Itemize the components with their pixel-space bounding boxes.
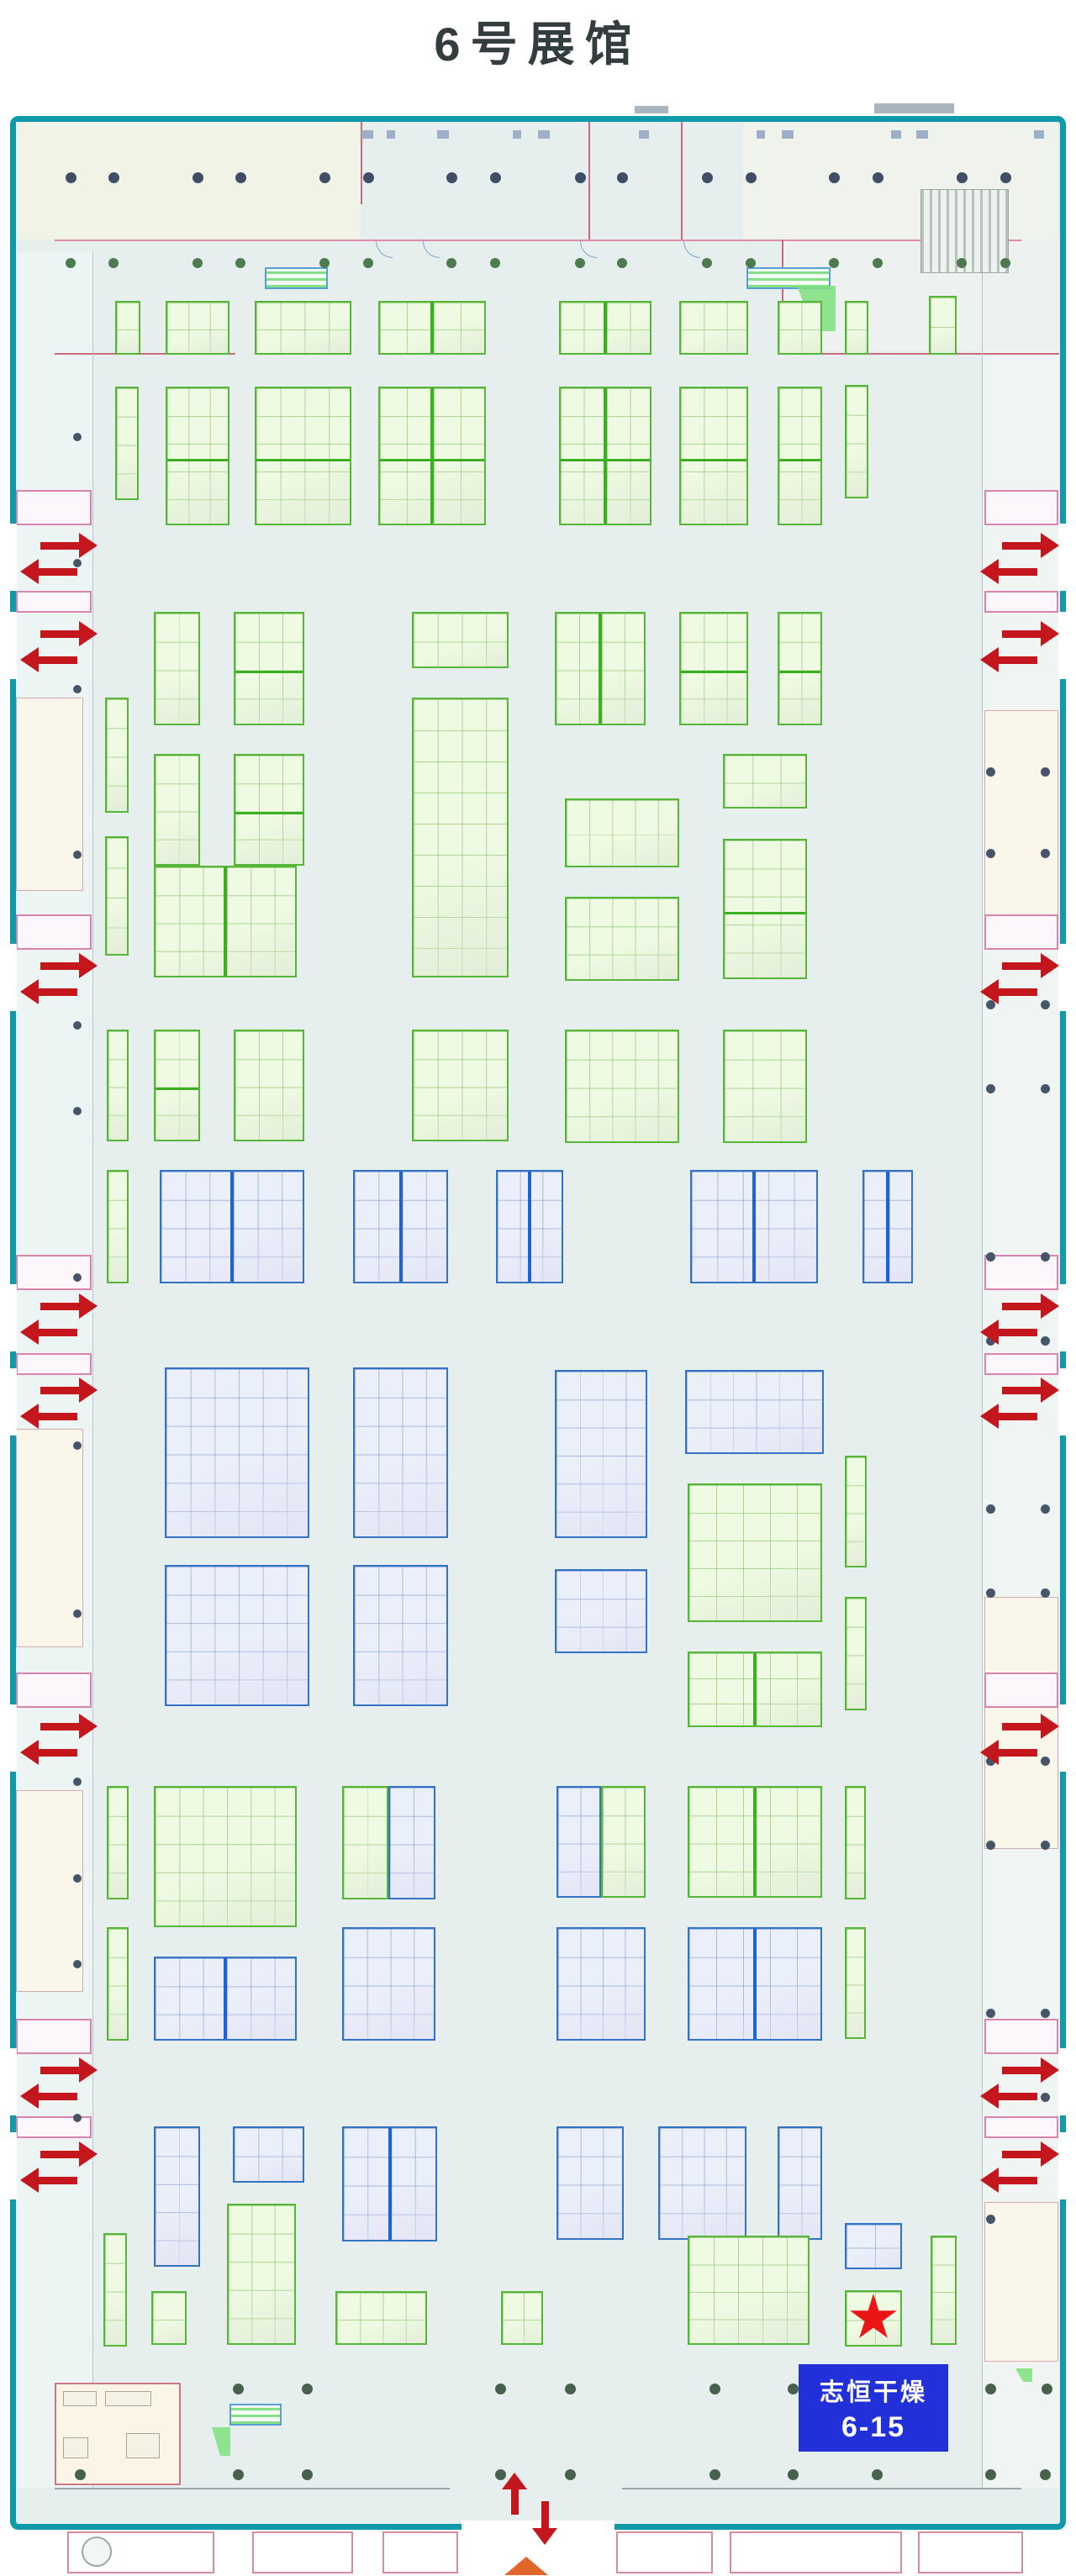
- column-dot: [1041, 849, 1050, 858]
- booth: [845, 1597, 867, 1710]
- exit-arrow-right-icon: [1002, 1714, 1059, 1739]
- column-dot: [1041, 1588, 1050, 1598]
- column-dot: [1041, 1757, 1050, 1766]
- booth-divider: [224, 1958, 227, 2039]
- booth: [227, 2204, 296, 2345]
- outside-room: [252, 2531, 353, 2573]
- service-fixture: [105, 2391, 151, 2406]
- booth: [931, 2236, 957, 2345]
- booth: [388, 1786, 435, 1899]
- vent-icon: [1034, 130, 1044, 139]
- column-dot: [1041, 1252, 1050, 1262]
- perimeter-room: [16, 914, 92, 950]
- booth: [154, 754, 200, 866]
- column-dot: [746, 172, 757, 183]
- door-gap: [1058, 612, 1068, 679]
- column-dot: [66, 258, 76, 268]
- column-dot: [985, 2384, 996, 2394]
- door-gap: [1058, 2132, 1068, 2199]
- column-dot: [446, 258, 456, 268]
- door-gap: [8, 524, 17, 591]
- booth: [501, 2291, 543, 2345]
- column-dot: [73, 1609, 82, 1618]
- wall-line: [622, 2488, 1021, 2489]
- exit-arrow-right-icon: [1002, 621, 1059, 646]
- entrance-arrow-up-icon: [502, 2473, 527, 2516]
- column-dot: [446, 172, 457, 183]
- booth: [105, 698, 129, 813]
- booth: [845, 2223, 902, 2269]
- booth-label-card: 志恒干燥 6-15: [799, 2364, 948, 2452]
- booth: [353, 1170, 448, 1283]
- booth-divider: [235, 812, 303, 814]
- column-dot: [73, 1441, 82, 1450]
- orange-triangle-icon: [504, 2557, 548, 2575]
- booth: [154, 2126, 200, 2267]
- column-dot: [788, 2469, 799, 2480]
- column-dot: [957, 258, 967, 268]
- column-dot: [872, 2469, 883, 2480]
- exit-arrow-left-icon: [980, 559, 1037, 584]
- column-dot: [75, 2469, 86, 2480]
- column-dot: [873, 172, 883, 183]
- outside-room: [382, 2531, 458, 2573]
- booth: [151, 2291, 187, 2345]
- booth: [342, 1786, 388, 1899]
- perimeter-room: [984, 1353, 1058, 1375]
- perimeter-room: [984, 914, 1058, 950]
- perimeter-room: [984, 490, 1058, 525]
- floor-plan: 志恒干燥 6-15: [0, 0, 1076, 2576]
- booth-divider: [167, 459, 228, 461]
- exit-arrow-left-icon: [20, 647, 77, 672]
- exit-arrow-right-icon: [40, 1378, 98, 1403]
- column-dot: [1041, 1841, 1050, 1850]
- column-dot: [617, 258, 627, 268]
- booth-divider: [779, 459, 820, 461]
- booth: [234, 754, 304, 866]
- exit-arrow-right-icon: [40, 2141, 98, 2167]
- booth-label-company: 志恒干燥: [820, 2373, 927, 2408]
- booth: [353, 1367, 448, 1538]
- booth: [154, 1030, 200, 1141]
- booth: [412, 1030, 509, 1141]
- column-dot: [575, 172, 586, 183]
- perimeter-room: [984, 2202, 1058, 2362]
- wall-line: [55, 2488, 450, 2489]
- exit-arrow-left-icon: [20, 979, 77, 1004]
- perimeter-room: [16, 490, 92, 525]
- column-dot: [73, 433, 82, 441]
- wall-line: [681, 122, 683, 240]
- booth: [601, 1786, 646, 1898]
- column-dot: [985, 2469, 996, 2480]
- exit-arrow-left-icon: [980, 1740, 1037, 1765]
- column-dot: [702, 258, 712, 268]
- booth: [496, 1170, 563, 1283]
- booth: [555, 612, 646, 725]
- column-dot: [73, 1107, 82, 1115]
- booth: [107, 1786, 129, 1899]
- column-dot: [1041, 1000, 1050, 1009]
- column-dot: [235, 172, 246, 183]
- booth: [778, 2126, 822, 2240]
- booth: [688, 2236, 810, 2345]
- exit-arrow-right-icon: [1002, 1293, 1059, 1319]
- column-dot: [565, 2384, 576, 2394]
- booth-divider: [753, 1788, 757, 1896]
- roof-chip: [635, 106, 668, 113]
- booth-divider: [528, 1172, 531, 1282]
- exit-arrow-right-icon: [40, 953, 98, 978]
- wall-line: [782, 353, 1059, 355]
- booth: [688, 1483, 822, 1622]
- booth-divider: [380, 459, 484, 461]
- booth-divider: [156, 1088, 198, 1090]
- booth: [166, 387, 229, 525]
- booth: [688, 1927, 822, 2041]
- booth-divider: [604, 303, 607, 353]
- booth: [845, 1456, 867, 1567]
- wall-line: [588, 122, 590, 240]
- booth: [555, 1569, 647, 1653]
- booth-divider: [752, 1172, 756, 1282]
- booth-divider: [430, 388, 434, 524]
- exit-arrow-left-icon: [20, 2168, 77, 2193]
- booth: [107, 1170, 129, 1283]
- booth: [679, 301, 748, 355]
- vent-icon: [387, 130, 395, 139]
- booth: [559, 387, 651, 525]
- column-dot: [108, 172, 119, 183]
- perimeter-room: [16, 1353, 92, 1375]
- door-gap: [8, 1704, 17, 1772]
- booth-divider: [256, 459, 350, 461]
- booth-divider: [725, 912, 805, 914]
- exit-arrow-left-icon: [20, 1404, 77, 1429]
- booth: [556, 2126, 624, 2240]
- exit-arrow-right-icon: [40, 1293, 98, 1319]
- exit-arrow-right-icon: [1002, 1378, 1059, 1403]
- booth: [565, 798, 679, 867]
- column-dot: [1041, 767, 1050, 777]
- column-dot: [363, 258, 373, 268]
- booth-divider: [399, 1172, 403, 1282]
- column-dot: [702, 172, 713, 183]
- info-kiosk-icon: [265, 267, 328, 289]
- outside-room: [616, 2531, 713, 2573]
- vent-icon: [916, 130, 928, 139]
- column-dot: [108, 258, 119, 268]
- booth: [555, 1370, 647, 1538]
- booth: [556, 1786, 601, 1898]
- column-dot: [233, 2384, 244, 2394]
- booth: [255, 387, 351, 525]
- column-dot: [73, 2114, 82, 2122]
- booth: [353, 1565, 448, 1706]
- booth: [556, 1927, 646, 2041]
- column-dot: [986, 1841, 995, 1850]
- booth-divider: [430, 303, 434, 353]
- column-dot: [1040, 2469, 1051, 2480]
- exit-arrow-left-icon: [980, 1320, 1037, 1345]
- booth: [929, 296, 957, 355]
- vent-icon: [782, 130, 794, 139]
- column-dot: [73, 851, 82, 859]
- column-dot: [986, 1252, 995, 1262]
- vent-icon: [513, 130, 521, 139]
- door-gap: [8, 2132, 17, 2199]
- column-dot: [986, 767, 995, 777]
- door-gap: [8, 2048, 17, 2115]
- exit-arrow-left-icon: [980, 2083, 1037, 2109]
- perimeter-room: [16, 2019, 92, 2054]
- exit-arrow-right-icon: [40, 533, 98, 558]
- exit-arrow-left-icon: [20, 1320, 77, 1345]
- vent-icon: [538, 130, 550, 139]
- column-dot: [986, 2009, 995, 2018]
- perimeter-room: [984, 591, 1058, 613]
- column-dot: [73, 1778, 82, 1786]
- booth: [166, 301, 229, 355]
- exit-arrow-left-icon: [980, 1404, 1037, 1429]
- booth: [105, 836, 129, 956]
- door-gap: [1058, 1704, 1068, 1772]
- booth: [690, 1170, 818, 1283]
- booth: [335, 2291, 427, 2345]
- booth: [565, 897, 679, 981]
- booth: [115, 387, 139, 500]
- exit-arrow-left-icon: [20, 1740, 77, 1765]
- booth: [658, 2126, 746, 2240]
- exit-arrow-right-icon: [40, 2057, 98, 2083]
- booth: [154, 1786, 297, 1927]
- area-tint: [743, 122, 1058, 240]
- booth: [679, 387, 748, 525]
- booth-divider: [753, 1653, 757, 1725]
- exit-arrow-right-icon: [40, 1714, 98, 1739]
- column-dot: [986, 849, 995, 858]
- booth: [845, 301, 868, 355]
- column-dot: [302, 2469, 313, 2480]
- door-gap: [8, 944, 17, 1011]
- column-dot: [986, 1588, 995, 1598]
- column-dot: [363, 172, 374, 183]
- door-gap: [8, 612, 17, 679]
- booth: [234, 1030, 304, 1141]
- booth: [103, 2233, 127, 2347]
- booth: [154, 612, 200, 725]
- exit-arrow-left-icon: [980, 979, 1037, 1004]
- booth-divider: [753, 1929, 757, 2039]
- column-dot: [788, 2384, 799, 2394]
- vent-icon: [639, 130, 649, 139]
- column-dot: [746, 258, 756, 268]
- column-dot: [319, 258, 330, 268]
- column-dot: [73, 685, 82, 693]
- column-dot: [1000, 258, 1010, 268]
- roof-chip: [874, 103, 954, 113]
- column-dot: [73, 1874, 82, 1883]
- booth-divider: [230, 1172, 234, 1282]
- column-dot: [193, 172, 203, 183]
- column-dot: [1041, 1336, 1050, 1346]
- wall-line: [982, 252, 983, 2488]
- booth: [115, 301, 140, 355]
- perimeter-room: [984, 710, 1058, 946]
- wall-line: [55, 240, 1021, 241]
- booth: [778, 387, 822, 525]
- booth-divider: [388, 2128, 392, 2240]
- booth: [342, 1927, 435, 2041]
- column-dot: [986, 1084, 995, 1093]
- column-dot: [1042, 2384, 1052, 2394]
- vent-icon: [437, 130, 449, 139]
- perimeter-room: [984, 2116, 1058, 2138]
- column-dot: [957, 172, 968, 183]
- column-dot: [986, 1504, 995, 1514]
- perimeter-room: [16, 591, 92, 613]
- column-dot: [1041, 2009, 1050, 2018]
- booth: [778, 301, 822, 355]
- column-dot: [986, 2215, 995, 2224]
- door-gap: [1058, 524, 1068, 591]
- booth: [778, 612, 822, 725]
- column-dot: [565, 2469, 576, 2480]
- booth: [234, 612, 304, 725]
- service-fixture: [63, 2437, 88, 2458]
- column-dot: [66, 172, 76, 183]
- exit-arrow-right-icon: [1002, 953, 1059, 978]
- exit-arrow-right-icon: [1002, 2141, 1059, 2167]
- booth: [565, 1030, 679, 1143]
- column-dot: [235, 258, 245, 268]
- booth-divider: [599, 614, 602, 724]
- exit-arrow-left-icon: [980, 647, 1037, 672]
- booth-divider: [779, 671, 820, 673]
- door-gap: [1058, 944, 1068, 1011]
- booth: [412, 698, 509, 977]
- booth: [685, 1370, 824, 1454]
- booth: [154, 1957, 297, 2041]
- column-dot: [495, 2384, 506, 2394]
- booth: [378, 301, 486, 355]
- vent-icon: [361, 130, 373, 139]
- outside-room: [918, 2531, 1023, 2573]
- column-dot: [709, 2469, 720, 2480]
- booth: [165, 1565, 309, 1706]
- column-dot: [73, 1273, 82, 1282]
- exit-arrow-left-icon: [980, 2168, 1037, 2193]
- perimeter-room: [16, 1255, 92, 1290]
- column-dot: [1041, 1084, 1050, 1093]
- door-gap: [8, 1284, 17, 1351]
- column-dot: [302, 2384, 313, 2394]
- booth: [845, 1927, 866, 2039]
- exit-arrow-right-icon: [1002, 533, 1059, 558]
- booth-label-number: 6-15: [841, 2411, 905, 2444]
- exit-arrow-right-icon: [40, 621, 98, 646]
- column-dot: [575, 258, 585, 268]
- vent-icon: [891, 130, 901, 139]
- entrance-arrow-down-icon: [532, 2501, 557, 2545]
- booth-divider: [604, 388, 607, 524]
- booth: [679, 612, 748, 725]
- booth-divider: [681, 671, 746, 673]
- booth: [559, 301, 651, 355]
- vent-icon: [757, 130, 765, 139]
- door-gap: [1058, 2048, 1068, 2115]
- info-kiosk-icon: [229, 2404, 282, 2426]
- booth: [160, 1170, 304, 1283]
- booth-divider: [235, 671, 303, 673]
- booth: [165, 1367, 309, 1538]
- booth-divider: [886, 1172, 889, 1282]
- column-dot: [73, 1021, 82, 1030]
- column-dot: [829, 258, 839, 268]
- booth: [154, 866, 297, 977]
- outside-room: [730, 2531, 902, 2573]
- booth: [688, 1786, 822, 1898]
- perimeter-room: [16, 1673, 92, 1708]
- exit-arrow-left-icon: [20, 2083, 77, 2109]
- column-dot: [709, 2384, 720, 2394]
- perimeter-room: [984, 1673, 1058, 1708]
- column-dot: [873, 258, 883, 268]
- exit-arrow-right-icon: [1002, 2057, 1059, 2083]
- booth: [723, 1030, 807, 1143]
- column-dot: [1000, 172, 1011, 183]
- column-dot: [73, 1960, 82, 1968]
- booth: [233, 2126, 304, 2183]
- exit-arrow-left-icon: [20, 559, 77, 584]
- column-dot: [1041, 1504, 1050, 1514]
- service-fixture: [63, 2391, 97, 2406]
- door-gap: [8, 1368, 17, 1436]
- booth: [845, 385, 868, 498]
- booth: [845, 1786, 866, 1899]
- column-dot: [490, 172, 501, 183]
- column-dot: [490, 258, 500, 268]
- booth-divider: [224, 867, 227, 976]
- column-dot: [1041, 2093, 1050, 2102]
- booth-divider: [561, 459, 650, 461]
- booth: [688, 1651, 822, 1727]
- booth: [412, 612, 509, 668]
- column-dot: [319, 172, 330, 183]
- column-dot: [617, 172, 628, 183]
- column-dot: [193, 258, 203, 268]
- column-dot: [233, 2469, 244, 2480]
- round-table-icon: [82, 2536, 112, 2567]
- door-gap: [1058, 1368, 1068, 1436]
- booth: [107, 1927, 129, 2041]
- booth: [723, 754, 807, 809]
- booth: [723, 839, 807, 979]
- column-dot: [829, 172, 840, 183]
- booth: [107, 1030, 129, 1141]
- door-gap: [1058, 1284, 1068, 1351]
- service-fixture: [126, 2433, 160, 2458]
- perimeter-room: [984, 2019, 1058, 2054]
- booth: [378, 387, 486, 525]
- booth: [862, 1170, 913, 1283]
- booth-divider: [681, 459, 746, 461]
- booth: [255, 301, 351, 355]
- booth: [342, 2126, 437, 2241]
- perimeter-room: [16, 698, 83, 891]
